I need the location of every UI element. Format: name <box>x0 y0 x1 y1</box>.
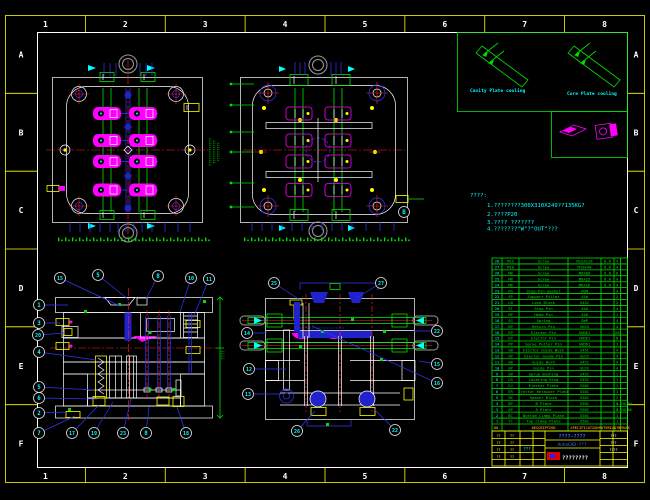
bom-cell: GP <box>508 353 513 358</box>
zone-column-label: 1 <box>43 20 48 29</box>
bom-cell: Sprue Puller Pin <box>525 342 562 347</box>
zone-row-label: F <box>19 440 24 449</box>
bom-cell: S45C <box>580 359 589 364</box>
bom-cell: SK <box>508 395 513 400</box>
notes-line: 1.????????300X310X249??135KG? <box>487 203 585 209</box>
bom-cell: Top Clamp Plate <box>526 419 561 424</box>
title-block-label: ?? <box>496 441 500 445</box>
bom-cell: 45# <box>581 306 589 311</box>
bom-cell: 10 <box>495 365 500 370</box>
bom-cell: POM <box>581 288 589 293</box>
bom-cell: S45C <box>580 377 589 382</box>
paper-background <box>0 0 650 500</box>
bom-cell: SP <box>508 294 513 299</box>
balloon-number: 5 <box>37 385 41 391</box>
bom-cell: Guide Bush <box>532 359 555 364</box>
bom-cell: Stop Pin <box>534 306 552 311</box>
bom-cell: RP <box>508 324 513 329</box>
balloon-number: 8 <box>144 431 148 437</box>
bom-cell: S50C <box>580 401 589 406</box>
bom-cell: EP <box>508 336 513 341</box>
bom-cell: 2 <box>616 395 618 400</box>
bom-cell: Ejector Guide Bush <box>523 348 564 353</box>
zone-column-label: 4 <box>283 20 288 29</box>
bom-cell: PG <box>508 288 513 293</box>
title-block-label: ?? <box>496 448 500 452</box>
bom-cell: 45# <box>581 312 589 317</box>
inset-label-left: Cavity Plate cooling <box>470 88 526 94</box>
leader-dot <box>230 182 233 185</box>
bom-cell: M6 <box>508 282 513 287</box>
bom-cell: 23 <box>495 288 500 293</box>
leader-dot <box>230 83 233 86</box>
bom-cell: 8.8 <box>604 282 612 287</box>
bom-cell: Stop-Pin Gasket <box>526 288 560 293</box>
bom-cell: 0-350-80 <box>616 402 631 406</box>
bom-cell: 11 <box>495 359 500 364</box>
zone-row-label: A <box>19 50 24 59</box>
bom-cell: SG <box>508 318 513 323</box>
bom-cell: 19 <box>495 312 500 317</box>
bom-cell: 8.8 <box>604 276 612 281</box>
bom-cell: M12 <box>507 259 514 264</box>
leader-dot <box>230 206 233 209</box>
bom-cell: BC <box>508 413 513 418</box>
bom-header: DESCRIPTION <box>532 426 556 430</box>
bom-cell: 27 <box>495 265 500 270</box>
bom-cell: M8X25 <box>579 276 590 281</box>
bom-cell: 17 <box>495 324 500 329</box>
bom-cell: 22 <box>495 294 500 299</box>
zone-row-label: B <box>19 128 24 137</box>
zone-column-label: 2 <box>123 472 128 481</box>
bom-cell: SKD61 <box>579 330 591 335</box>
bom-cell: Ejector Plate <box>529 383 559 388</box>
zone-row-label: B <box>634 128 639 137</box>
software-label: AutoCAD-??? <box>557 442 586 448</box>
bom-cell: 14 <box>495 342 500 347</box>
zone-row-label: E <box>634 362 639 371</box>
bom-cell: M8 <box>508 276 513 281</box>
bom-cell: M12X110 <box>576 259 593 264</box>
notes-line: 2.????P20 <box>487 212 517 218</box>
balloon-number: 13 <box>245 392 251 398</box>
balloon-number: 20 <box>35 333 41 339</box>
balloon-number: 15 <box>434 362 440 368</box>
title-block-label: ?? <box>510 441 514 445</box>
balloon-number: 4 <box>37 350 41 356</box>
bom-cell: S50C <box>580 407 589 412</box>
bom-cell: M10X40 <box>578 265 592 270</box>
bom-cell: 0-350-60 <box>616 408 631 412</box>
balloon-number: 6 <box>37 396 41 402</box>
title-block-label: ?? <box>496 455 500 459</box>
bom-cell: EP <box>508 330 513 335</box>
bom-cell: 21 <box>495 300 500 305</box>
bom-cell: 7 <box>496 383 498 388</box>
title-block-label: ?? <box>510 455 514 459</box>
bom-header: SPECIFICATION <box>570 426 598 430</box>
balloon-number: 12 <box>246 367 252 373</box>
zone-column-label: 4 <box>283 472 288 481</box>
bom-cell: 8.8 <box>604 259 612 264</box>
check-note: ??? <box>523 447 531 452</box>
bom-cell: ST <box>508 306 513 311</box>
balloon-number: 19 <box>91 431 97 437</box>
balloon-number: 1 <box>37 303 41 309</box>
zone-column-label: 8 <box>602 20 607 29</box>
bom-cell: A Plate <box>535 407 552 412</box>
balloon-number: 11 <box>206 277 212 283</box>
balloon-number: 17 <box>69 431 75 437</box>
bom-cell: 16 <box>495 330 500 335</box>
inset-label-right: Core Plate cooling <box>567 91 617 97</box>
bom-cell: Ejector Pin <box>531 336 556 341</box>
bom-cell: SUJ2 <box>580 353 589 358</box>
company-name: ???????? <box>562 456 588 462</box>
bom-cell: 18 <box>495 318 500 323</box>
bom-cell: 24 <box>495 282 500 287</box>
bom-cell: Locating Ring <box>529 377 559 382</box>
title-block-right-label: ??? <box>610 434 616 438</box>
balloon-number: 23 <box>120 431 126 437</box>
bom-cell: SUJ2 <box>580 365 589 370</box>
bom-cell: SWP <box>581 318 589 323</box>
bom-cell: Screw <box>538 276 550 281</box>
balloon-number: B <box>402 210 406 216</box>
bom-cell: S45C <box>580 300 589 305</box>
bom-cell: ER <box>508 389 513 394</box>
plan1-dim: ????????? <box>217 142 221 161</box>
bom-cell: Bottom Clamp Plate <box>523 413 565 418</box>
cad-drawing-sheet: 1122334455667788AABBCCDDEEFF <box>0 0 650 500</box>
zone-column-label: 7 <box>522 20 527 29</box>
bom-cell: SB <box>508 371 513 376</box>
bom-cell: 45# <box>581 294 589 299</box>
balloon-number: 26 <box>294 429 300 435</box>
bom-header: REMARK <box>618 426 630 430</box>
bom-cell: Spring <box>537 318 551 323</box>
title-block-right-label: ???? <box>609 448 617 452</box>
title-block-label: ?? <box>496 434 500 438</box>
bom-cell: 13 <box>495 348 500 353</box>
balloon-number: 3 <box>37 321 41 327</box>
bom-cell: GB <box>508 359 513 364</box>
balloon-number: 18 <box>183 431 189 437</box>
bom-cell: SKS3 <box>580 324 589 329</box>
bom-cell: Sprue Bushing <box>529 371 559 376</box>
balloon-number: 15 <box>57 276 63 282</box>
bom-cell: S45C <box>580 348 589 353</box>
bom-cell: S50C <box>580 419 589 424</box>
bom-cell: Screw <box>538 282 550 287</box>
bom-header: NO. <box>494 426 501 430</box>
bom-cell: 2 <box>616 294 618 299</box>
bom-cell: 2 <box>496 413 498 418</box>
bom-cell: Lock Block <box>532 300 556 305</box>
bom-cell: S50C <box>580 395 589 400</box>
cad-canvas: 1122334455667788AABBCCDDEEFF <box>0 0 650 500</box>
lv-dim-text: ???? <box>221 350 226 360</box>
bom-cell: GB <box>508 348 513 353</box>
bom-cell: HP <box>508 312 513 317</box>
bom-cell: M8 <box>508 270 513 275</box>
bom-cell: 8.8 <box>604 265 612 270</box>
bom-cell: SKD61 <box>579 336 591 341</box>
bom-cell: 20 <box>495 306 500 311</box>
bom-cell: Head Pin <box>534 312 552 317</box>
drawing-title: ????-???? <box>558 434 585 440</box>
bom-cell: TC <box>508 419 513 424</box>
zone-row-label: A <box>634 50 639 59</box>
bom-cell: Screw <box>538 270 550 275</box>
bom-cell: Ejector Guide Pin <box>524 353 563 358</box>
zone-column-label: 3 <box>203 20 208 29</box>
zone-column-label: 5 <box>363 20 368 29</box>
balloon-number: 10 <box>188 276 194 282</box>
leader-dot <box>230 151 233 154</box>
zone-column-label: 7 <box>522 472 527 481</box>
bom-cell: Guide Pin <box>533 365 554 370</box>
balloon-number: 8 <box>156 274 160 280</box>
bom-cell: Screw <box>538 265 550 270</box>
bom-cell: LB <box>508 300 513 305</box>
bom-cell: 28 <box>495 259 500 264</box>
zone-row-label: D <box>19 284 24 293</box>
zone-row-label: E <box>19 362 24 371</box>
bom-cell: 26 <box>495 270 500 275</box>
balloon-number: 22 <box>434 329 440 335</box>
balloon-number: 27 <box>378 281 384 287</box>
bom-cell: S50C <box>580 413 589 418</box>
title-block-label: ?? <box>510 448 514 452</box>
bom-cell: 25 <box>495 276 500 281</box>
balloon-number: 14 <box>244 331 250 337</box>
bom-cell: B Plate <box>535 401 552 406</box>
title-block-label: ?? <box>510 434 514 438</box>
zone-column-label: 6 <box>442 20 447 29</box>
zone-row-label: C <box>19 206 24 215</box>
bom-cell: PP <box>508 342 513 347</box>
ejector-pins <box>144 310 172 398</box>
zone-row-label: D <box>634 284 639 293</box>
zone-column-label: 6 <box>442 472 447 481</box>
title-block-right-label: ??? <box>610 441 616 445</box>
balloon-number: 25 <box>271 281 277 287</box>
zone-column-label: 8 <box>602 472 607 481</box>
bom-cell: 12 <box>495 353 500 358</box>
leader-dot <box>230 131 233 134</box>
bom-cell: 5 <box>496 395 498 400</box>
balloon-number: 22 <box>392 428 398 434</box>
stamp-inner <box>550 454 555 458</box>
bom-cell: Return Pin <box>532 324 555 329</box>
bom-cell: BP <box>508 401 513 406</box>
balloon-number: 7 <box>37 431 41 437</box>
bom-cell: 8.8 <box>604 270 612 275</box>
notes-title: ????: <box>470 193 487 199</box>
zone-column-label: 2 <box>123 20 128 29</box>
leader-dot <box>230 104 233 107</box>
zone-row-label: C <box>634 206 639 215</box>
bom-cell: M10 <box>507 265 515 270</box>
zone-column-label: 1 <box>43 472 48 481</box>
balloon-number: 16 <box>434 381 440 387</box>
bom-cell: Ejector Retainer Plate <box>518 389 569 394</box>
bom-cell: SKD61 <box>579 342 591 347</box>
bom-cell: S50C <box>580 389 589 394</box>
balloon-number: 2 <box>37 411 41 417</box>
zone-column-label: 5 <box>363 472 368 481</box>
bom-cell: S45C <box>580 371 589 376</box>
bom-cell: GP <box>508 365 513 370</box>
bom-cell: Screw <box>538 259 550 264</box>
notes-line: 3.???? ??????? <box>487 220 534 226</box>
bom-cell: 20 <box>615 330 620 335</box>
bom-cell: M6X16 <box>579 282 591 287</box>
bom-cell: 15 <box>495 336 500 341</box>
bom-cell: AP <box>508 407 513 412</box>
notes-line: 4.???????"W"?"OUT"??? <box>487 227 558 233</box>
bom-cell: 3 <box>496 407 498 412</box>
zone-row-label: F <box>634 440 639 449</box>
bom-cell: LR <box>508 377 513 382</box>
bom-cell: 2 <box>616 300 618 305</box>
bom-cell: Spacer Block <box>530 395 558 400</box>
balloon-number: 5 <box>96 273 100 279</box>
bom-cell: S50C <box>580 383 589 388</box>
zone-column-label: 3 <box>203 472 208 481</box>
bom-cell: EJ <box>508 383 513 388</box>
bom-cell: Support Pillar <box>527 294 560 299</box>
bom-cell: Ejector Pin <box>531 330 556 335</box>
bom-cell: M8X80 <box>579 270 591 275</box>
